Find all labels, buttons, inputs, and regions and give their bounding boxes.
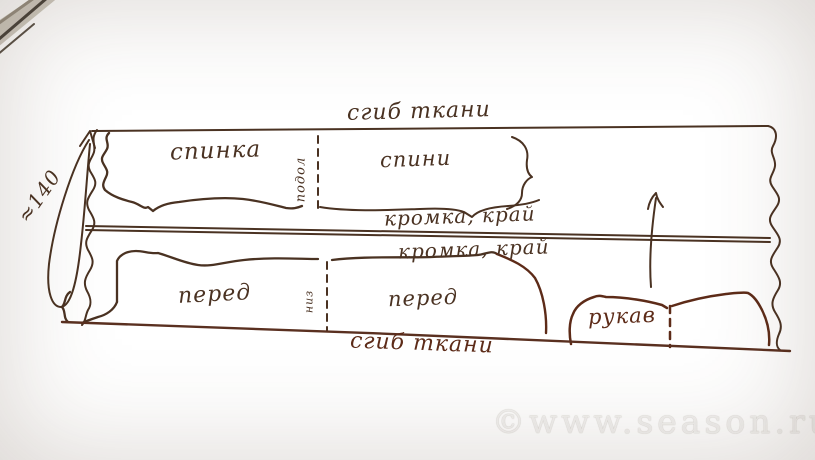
- fold-top-label: сгиб ткани: [347, 99, 491, 125]
- scissors-tip: [0, 0, 60, 76]
- sleeve-label: рукав: [588, 305, 657, 328]
- selvage-bottom-label: кромка, край: [398, 236, 550, 261]
- hem-vertical-label: подол: [295, 149, 308, 211]
- pattern-sketch: [0, 0, 815, 460]
- back-left-label: спинка: [170, 138, 262, 164]
- watermark: ©www.season.ru: [492, 402, 815, 441]
- selvage-top-label: кромка, край: [384, 203, 536, 228]
- fold-bottom-label: сгиб ткани: [350, 330, 494, 357]
- back-piece-2-brace: [507, 137, 532, 209]
- bottom-vertical-label: низ: [304, 281, 315, 323]
- front-right-label: перед: [388, 287, 459, 310]
- sleeve-right-outline: [672, 293, 769, 345]
- top-fold-line: [92, 126, 768, 131]
- front-piece-2-right-edge: [497, 254, 546, 333]
- width-arrow-loop: [48, 131, 95, 307]
- photographed-sewing-layout: сгиб ткани спинка подол спини кромка, кр…: [0, 0, 815, 460]
- back-right-label: спини: [380, 148, 452, 171]
- front-left-label: перед: [177, 282, 251, 308]
